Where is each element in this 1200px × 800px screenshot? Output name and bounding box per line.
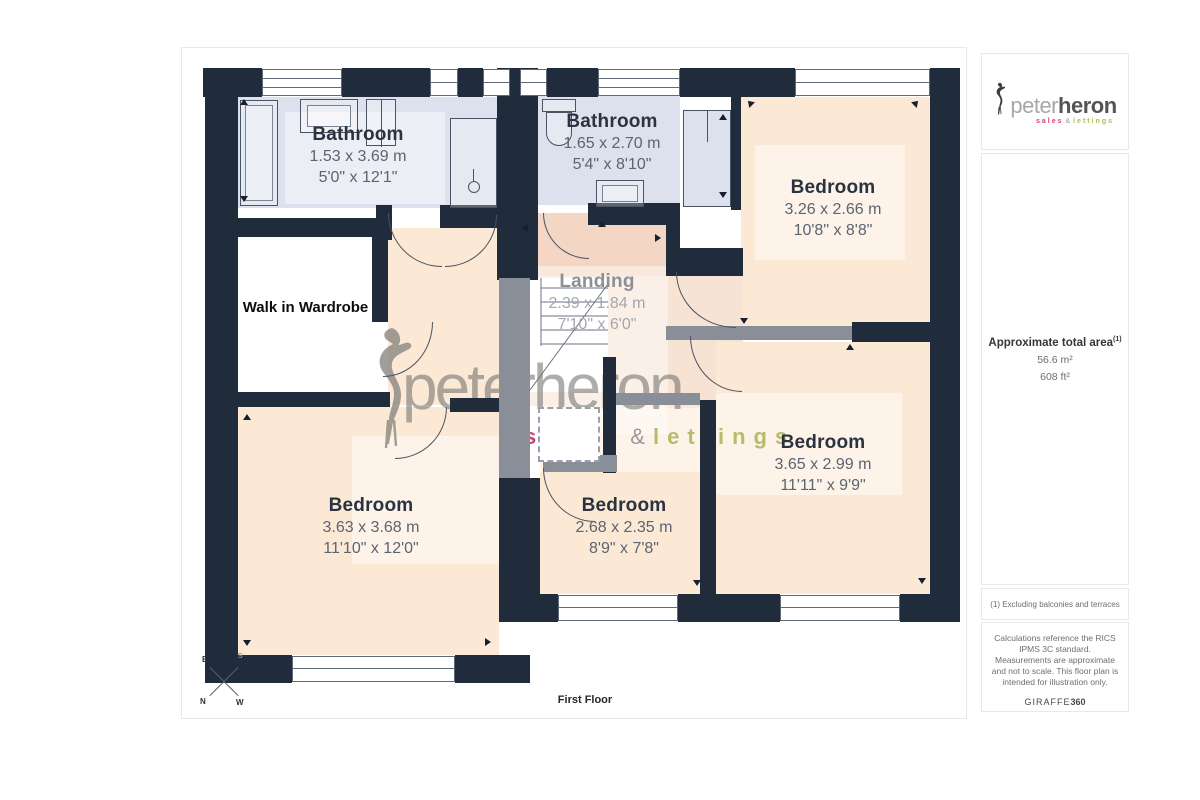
room-size-imperial: 5'0" x 12'1" xyxy=(268,167,448,188)
measure-arrow xyxy=(243,414,251,420)
measure-arrow xyxy=(719,192,727,198)
wall-wardrobe-bottom xyxy=(233,392,390,407)
compass-south: S xyxy=(238,653,243,660)
measure-arrow xyxy=(846,344,854,350)
wall-bedroom-bottomleft-top xyxy=(450,398,499,412)
wall-bottom-mid xyxy=(678,594,780,622)
room-label-bedroom-bottomleft: Bedroom 3.63 x 3.68 m 11'10" x 12'0" xyxy=(281,495,461,559)
sidebar-area-card: Approximate total area(1) 56.6 m² 608 ft… xyxy=(981,153,1129,585)
room-size-imperial: 8'9" x 7'8" xyxy=(534,538,714,559)
room-size-imperial: 7'10" x 6'0" xyxy=(512,314,682,335)
room-label-bedroom-right: Bedroom 3.65 x 2.99 m 11'11" x 9'9" xyxy=(733,432,913,496)
total-area-ft2: 608 ft² xyxy=(982,371,1128,383)
room-label-bathroom1: Bathroom 1.53 x 3.69 m 5'0" x 12'1" xyxy=(268,124,448,188)
room-size-imperial: 11'11" x 9'9" xyxy=(733,475,913,496)
sidebar-footnote-card: (1) Excluding balconies and terraces xyxy=(981,588,1129,620)
window xyxy=(483,69,510,96)
floor-title: First Floor xyxy=(540,694,630,706)
measure-arrow xyxy=(719,114,727,120)
measure-arrow xyxy=(522,224,528,232)
compass-north: N xyxy=(200,697,206,706)
window xyxy=(780,595,900,621)
measure-arrow xyxy=(693,580,701,586)
logo-sales: sales xyxy=(1036,118,1064,125)
room-name: Bathroom xyxy=(532,111,692,133)
window xyxy=(558,595,678,621)
room-size-imperial: 11'10" x 12'0" xyxy=(281,538,461,559)
window xyxy=(795,69,930,96)
room-name: Landing xyxy=(512,271,682,293)
wall-wardrobe-top xyxy=(233,218,388,237)
brand-logo-tagline: sales & lettings xyxy=(982,118,1128,125)
room-size-imperial: 5'4" x 8'10" xyxy=(532,154,692,175)
wall-hall-right xyxy=(666,203,680,250)
room-size-metric: 3.26 x 2.66 m xyxy=(743,199,923,220)
provider-logo: GIRAFFE360 xyxy=(982,697,1128,707)
room-size-imperial: 10'8" x 8'8" xyxy=(743,220,923,241)
room-label-bedroom-bottommid: Bedroom 2.68 x 2.35 m 8'9" x 7'8" xyxy=(534,495,714,559)
room-size-metric: 2.39 x 1.84 m xyxy=(512,293,682,314)
wall-bottom-right xyxy=(900,594,960,622)
window xyxy=(292,656,455,682)
wall-bathroom2-right xyxy=(731,97,741,210)
measure-arrow xyxy=(655,234,661,242)
footnote-marker: (1) xyxy=(1113,336,1122,343)
room-label-bedroom-topright: Bedroom 3.26 x 2.66 m 10'8" x 8'8" xyxy=(743,177,923,241)
logo-lettings: lettings xyxy=(1073,118,1114,125)
measure-arrow xyxy=(240,99,248,105)
measure-arrow xyxy=(918,578,926,584)
wall-bedrooms-divider-end xyxy=(852,322,930,342)
cupboard-dashed xyxy=(538,407,600,462)
shower xyxy=(450,118,497,208)
heron-logo-icon xyxy=(993,82,1008,116)
measure-arrow xyxy=(240,196,248,202)
room-name: Bedroom xyxy=(534,495,714,517)
brand-logo: peterheron xyxy=(982,54,1128,116)
wall-left xyxy=(205,68,238,683)
window xyxy=(430,69,458,96)
wall-top xyxy=(547,68,598,97)
window xyxy=(598,69,680,96)
room-size-metric: 2.68 x 2.35 m xyxy=(534,517,714,538)
compass-east: E xyxy=(202,655,207,664)
wall-top xyxy=(342,68,430,97)
room-name: Bedroom xyxy=(733,432,913,454)
window xyxy=(262,69,342,96)
room-size-metric: 3.63 x 3.68 m xyxy=(281,517,461,538)
measure-arrow xyxy=(243,640,251,646)
watermark-ampersand: & xyxy=(630,424,647,449)
window xyxy=(520,69,547,96)
wall-top xyxy=(458,68,483,97)
floorplan-page: peterheron sales & lettings xyxy=(0,0,1200,800)
footnote-text: (1) Excluding balconies and terraces xyxy=(990,600,1119,609)
sidebar-logo-card: peterheron sales & lettings xyxy=(981,53,1129,150)
room-label-bathroom2: Bathroom 1.65 x 2.70 m 5'4" x 8'10" xyxy=(532,111,692,175)
wall-bottom-left xyxy=(455,655,530,683)
logo-peter: peter xyxy=(1010,93,1058,118)
room-size-metric: 3.65 x 2.99 m xyxy=(733,454,913,475)
logo-heron: heron xyxy=(1058,93,1117,118)
wall-bottom-left xyxy=(205,655,292,683)
brand-logo-text: peterheron xyxy=(1010,96,1116,116)
total-area-label: Approximate total area(1) xyxy=(982,336,1128,349)
room-name: Bathroom xyxy=(268,124,448,146)
wall-right xyxy=(930,68,960,622)
disclaimer-text: Calculations reference the RICS IPMS 3C … xyxy=(982,623,1128,688)
shower-screen-line xyxy=(707,110,708,142)
logo-ampersand: & xyxy=(1065,118,1071,125)
room-size-metric: 1.53 x 3.69 m xyxy=(268,146,448,167)
sink xyxy=(596,180,644,207)
room-name: Bedroom xyxy=(281,495,461,517)
room-size-metric: 1.65 x 2.70 m xyxy=(532,133,692,154)
sidebar-disclaimer-card: Calculations reference the RICS IPMS 3C … xyxy=(981,622,1129,712)
measure-arrow xyxy=(598,221,606,227)
measure-arrow xyxy=(485,638,491,646)
total-area-m2: 56.6 m² xyxy=(982,354,1128,366)
compass-west: W xyxy=(236,698,244,707)
room-label-landing: Landing 2.39 x 1.84 m 7'10" x 6'0" xyxy=(512,271,682,335)
room-name: Bedroom xyxy=(743,177,923,199)
room-label-wardrobe: Walk in Wardrobe xyxy=(228,299,383,316)
measure-arrow xyxy=(740,318,748,324)
halfwall-bedroom-bottommid-top xyxy=(616,393,700,405)
provider-name: GIRAFFE xyxy=(1024,697,1070,707)
wall-top xyxy=(680,68,795,97)
provider-suffix: 360 xyxy=(1070,697,1085,707)
